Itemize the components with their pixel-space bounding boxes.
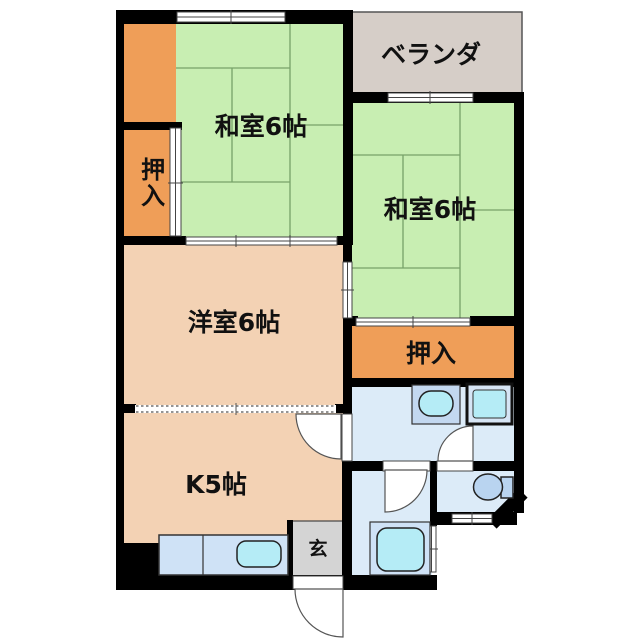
kitchen-label: K5帖 (185, 472, 247, 498)
wall-partition-nub-left (122, 404, 136, 413)
western-room-label: 洋室6帖 (188, 310, 280, 336)
wall-washroom-bottom-mid (430, 461, 437, 471)
wall-partition-nub-right (335, 404, 352, 413)
wall-kitchen-bath (342, 460, 352, 580)
bathtub (377, 528, 424, 571)
wall-bath-toilet-divider (430, 470, 437, 526)
wall-western-right-a (343, 240, 352, 262)
veranda-label: ベランダ (381, 42, 481, 68)
toilet-fixtures (474, 474, 514, 500)
wall-pipe-shaft (116, 543, 160, 583)
closet-right-label: 押入 (406, 341, 456, 367)
entrance-label: 玄 (308, 540, 327, 560)
toilet-bowl (474, 474, 503, 500)
bathroom-fixtures (370, 522, 430, 575)
entrance-door-swing (295, 589, 343, 637)
floor-plan: 和室6帖 和室6帖 洋室6帖 K5帖 ベランダ 押入 押入 玄 (0, 0, 640, 640)
doorway-kitchen-washroom (342, 414, 352, 461)
wall-left (116, 10, 124, 590)
wall-closet-right-top (470, 316, 514, 326)
kitchen-sink (237, 541, 281, 567)
doorway-entrance (293, 576, 343, 589)
doorway-washroom-toilet (437, 461, 473, 471)
wall-room-boundary-left (116, 236, 186, 245)
wall-bottom (116, 575, 437, 590)
kitchen-fixtures (159, 535, 288, 575)
washitsu-right-label: 和室6帖 (384, 197, 476, 223)
washitsu-top-label: 和室6帖 (215, 114, 307, 140)
wall-western-right-b (343, 318, 352, 415)
wall-between-washitsu (343, 10, 353, 240)
wall-washroom-bottom-right (473, 461, 514, 471)
closet-left-label: 押入 (137, 157, 162, 209)
wall-washroom-bottom-left (345, 461, 383, 471)
storage-upper-left (122, 12, 176, 124)
wash-basin (419, 391, 453, 416)
washing-machine (473, 390, 506, 418)
wall-right (514, 92, 524, 513)
